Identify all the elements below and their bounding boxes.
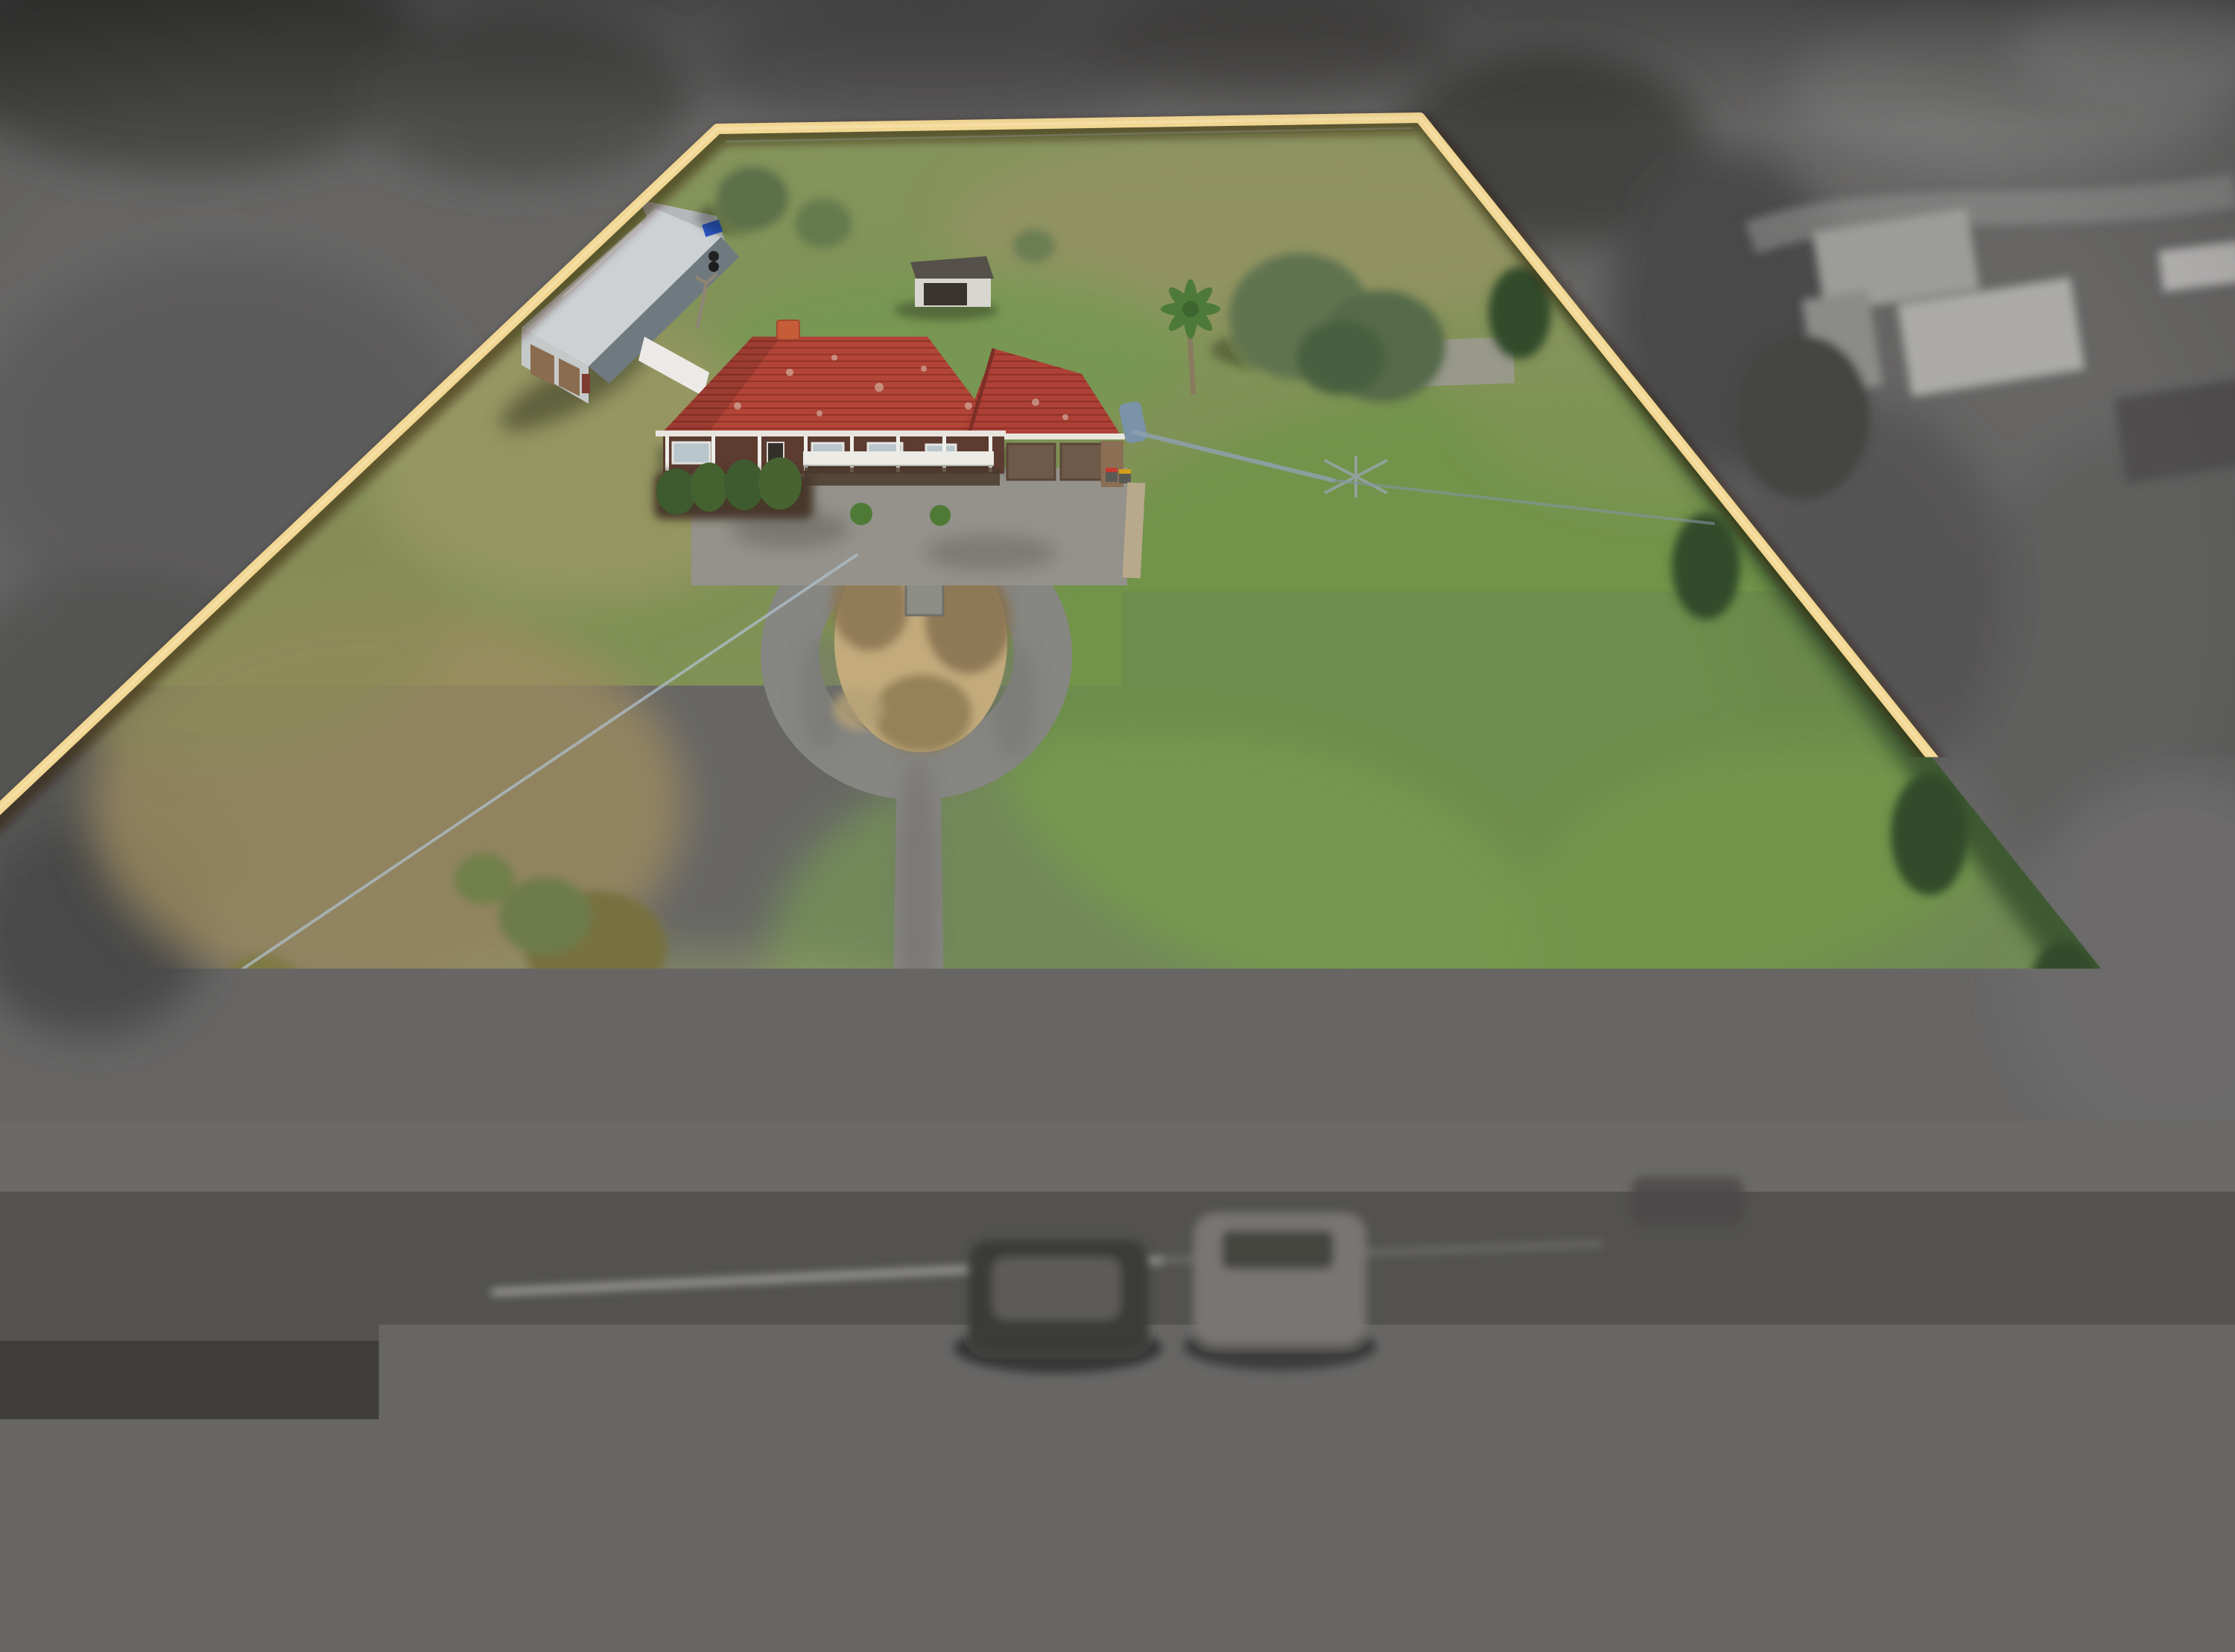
suburb-name: POINT COOK: [51, 1360, 730, 1472]
real-estate-flyer: { "overlay": { "address_line1": "470 POI…: [0, 0, 2235, 1490]
chn-agency-logo: CHN: [1921, 1318, 2190, 1467]
street-address: 470 POINT COOK RD ,: [54, 1284, 719, 1348]
aerial-property-photo: [0, 0, 2235, 1490]
